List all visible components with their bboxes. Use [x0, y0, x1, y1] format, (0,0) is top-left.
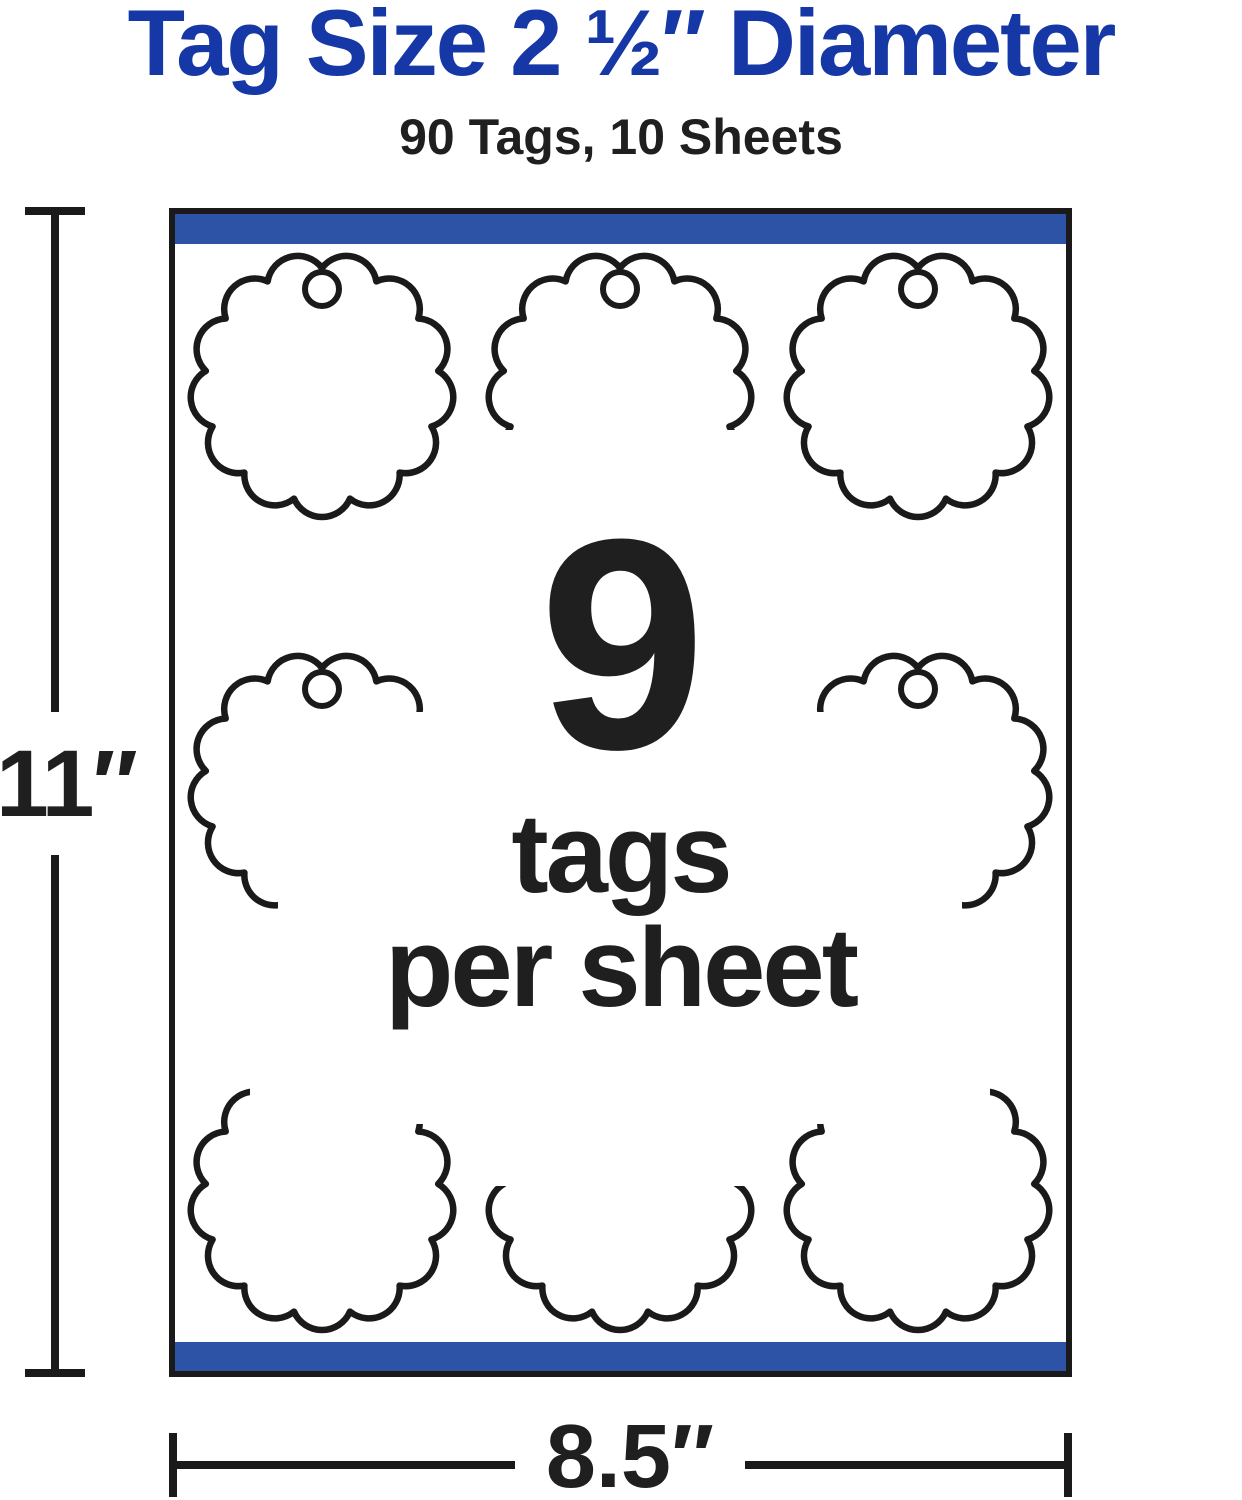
- product-diagram: Tag Size 2 ½″ Diameter 90 Tags, 10 Sheet…: [0, 0, 1242, 1500]
- scalloped-tag-icon: [787, 256, 1050, 517]
- tags-per-sheet-word2: per sheet: [175, 912, 1066, 1024]
- subtitle: 90 Tags, 10 Sheets: [0, 108, 1242, 166]
- sheet-top-bar: [175, 214, 1066, 244]
- tags-per-sheet-label: 9 tags per sheet: [175, 530, 1066, 1024]
- tags-per-sheet-count: 9: [175, 530, 1066, 758]
- page-title: Tag Size 2 ½″ Diameter: [0, 0, 1242, 93]
- label-clip-mask: [480, 1040, 760, 1186]
- scalloped-tag-icon: [191, 256, 454, 517]
- dimension-width-right-cap: [1064, 1433, 1072, 1497]
- dimension-height-line-lower: [51, 855, 59, 1377]
- dimension-height-bottom-cap: [25, 1369, 85, 1377]
- dimension-width-line-right: [745, 1461, 1067, 1469]
- dimension-width-label: 8.5″: [505, 1406, 755, 1500]
- dimension-height-line-upper: [51, 207, 59, 712]
- hang-hole-icon: [305, 272, 339, 306]
- sheet-diagram: 9 tags per sheet: [169, 208, 1072, 1377]
- tags-per-sheet-word1: tags: [175, 798, 1066, 910]
- sheet-bottom-bar: [175, 1342, 1066, 1371]
- hang-hole-icon: [901, 272, 935, 306]
- dimension-width-line-left: [173, 1461, 515, 1469]
- dimension-height-label: 11″: [0, 730, 134, 839]
- hang-hole-icon: [603, 272, 637, 306]
